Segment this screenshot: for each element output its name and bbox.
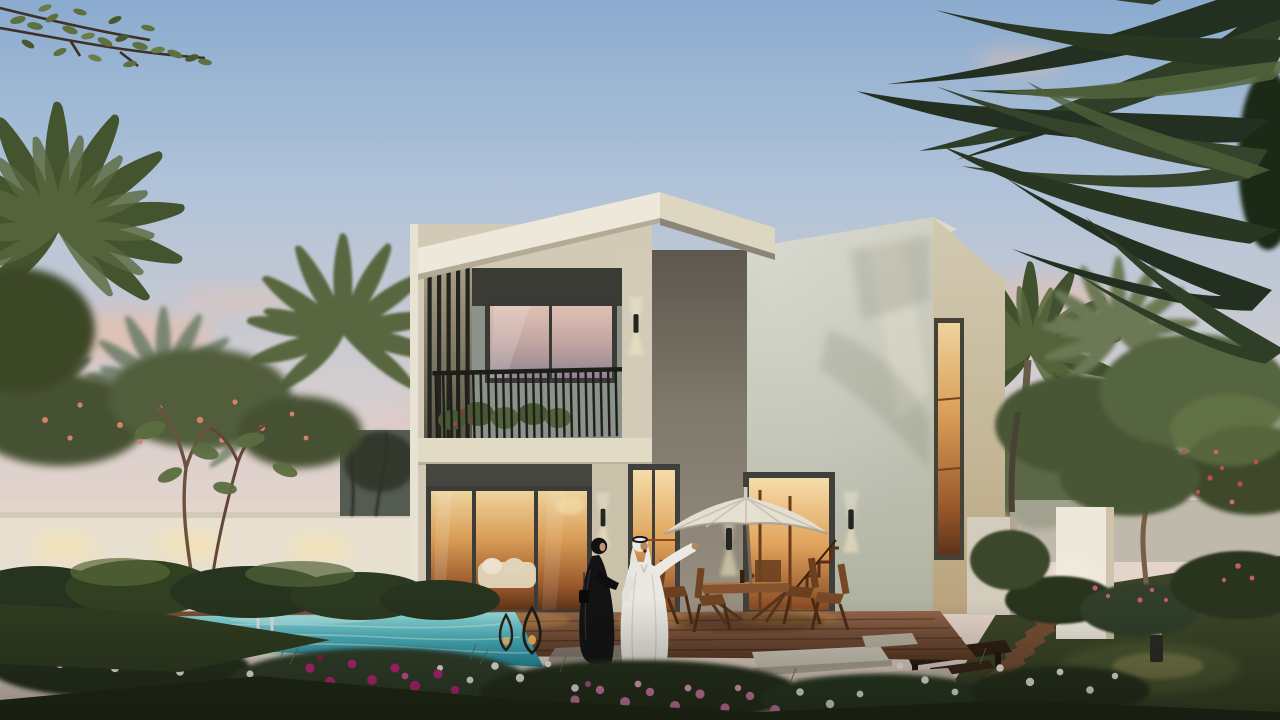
- scene-canvas: [0, 0, 1280, 720]
- villa-render: [0, 0, 1280, 720]
- vignette: [0, 0, 1280, 720]
